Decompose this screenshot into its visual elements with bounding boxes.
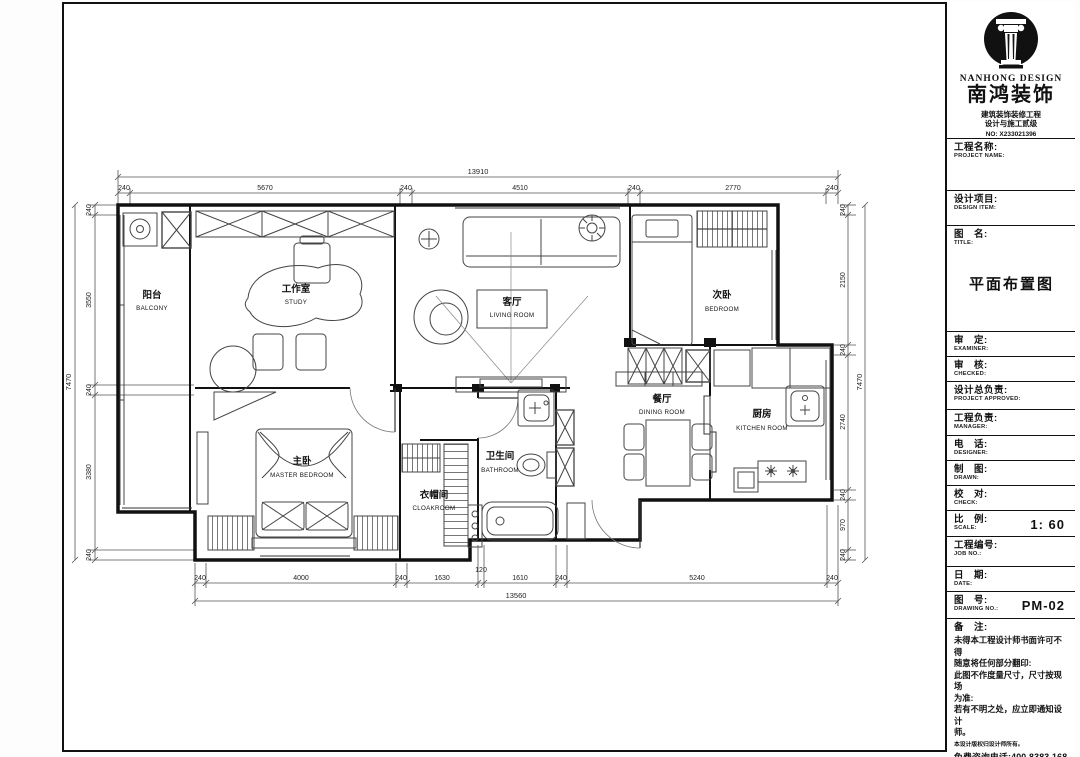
bedroom2-bed	[632, 215, 692, 345]
field-scale: 比 例: SCALE: 1: 60	[947, 511, 1075, 537]
company-cert-line1: 建筑装饰装修工程	[981, 110, 1041, 119]
room-label-study-cn: 工作室	[282, 283, 311, 295]
study-rug	[210, 346, 256, 392]
dim-left-3: 3380	[86, 464, 93, 480]
dim-left-0: 240	[86, 204, 93, 216]
dim-top-3: 4510	[512, 185, 528, 192]
field-check: 校 对: CHECK:	[947, 486, 1075, 511]
room-label-master-cn: 主卧	[292, 455, 312, 467]
field-drawing-no: 图 号: DRAWING NO.: PM-02	[947, 592, 1075, 619]
field-drawn-cn: 制 图:	[954, 464, 1069, 475]
study-chair-left	[253, 334, 283, 370]
company-logo-icon	[980, 10, 1042, 72]
master-desk	[214, 392, 276, 420]
room-label-cloakroom-en: CLOAKROOM	[413, 505, 456, 512]
dim-top-total: 13910	[468, 167, 489, 176]
kitchen-slider-leaf-2	[710, 432, 716, 472]
master-dresser	[197, 432, 208, 504]
field-examiner-cn: 审 定:	[954, 335, 1069, 346]
dining-table	[646, 420, 690, 486]
field-check-cn: 校 对:	[954, 489, 1069, 500]
room-label-kitchen-en: KITCHEN ROOM	[736, 425, 788, 432]
room-label-dining-cn: 餐厅	[651, 393, 672, 405]
room-label-master-en: MASTER BEDROOM	[270, 472, 334, 479]
field-phone-cn: 电 话:	[954, 439, 1069, 450]
armchair	[414, 290, 468, 344]
dim-top-1: 5670	[257, 185, 273, 192]
field-checked: 审 核: CHECKED:	[947, 357, 1075, 382]
room-label-bathroom-cn: 卫生间	[486, 450, 515, 462]
dim-top-6: 240	[826, 185, 838, 192]
drawing-no-value: PM-02	[1022, 598, 1065, 613]
field-check-en: CHECK:	[954, 500, 1069, 507]
study-chair-top	[294, 243, 330, 283]
note-line-4: 为准:	[954, 693, 1069, 705]
dim-bot-5: 1610	[512, 575, 528, 582]
top-dimension-chain: 13910 240 5670 240 4510 240 2770 240	[115, 167, 841, 204]
field-title-cn: 图 名:	[954, 229, 1069, 240]
toilet-tank	[547, 452, 556, 478]
room-label-balcony-en: BALCONY	[136, 305, 168, 312]
field-manager-en: MANAGER:	[954, 424, 1069, 431]
room-label-balcony-cn: 阳台	[142, 289, 162, 301]
note-line-5: 若有不明之处，应立即通知设计	[954, 704, 1069, 727]
field-project-name-cn: 工程名称:	[954, 142, 1069, 153]
burner-icons	[765, 465, 799, 477]
master-furniture	[197, 392, 398, 550]
notes-heading: 备 注:	[954, 622, 1069, 633]
dim-right-6: 240	[840, 549, 847, 561]
dim-right-3: 2740	[840, 414, 847, 430]
field-project-approved-cn: 设计总负责:	[954, 385, 1069, 396]
bedroom2-furniture	[628, 211, 767, 384]
master-wardrobe-left	[208, 516, 254, 550]
dining-chair-2	[624, 454, 644, 480]
notes-block: 备 注: 未得本工程设计师书面许可不得 随意将任何部分翻印: 此图不作度量尺寸，…	[947, 619, 1075, 757]
note-line-3: 此图不作度量尺寸，尺寸按现场	[954, 670, 1069, 693]
left-dimension-chain: 240 3550 240 3380 240 7470	[64, 202, 194, 563]
field-manager: 工程负责: MANAGER:	[947, 410, 1075, 436]
windows	[120, 208, 830, 556]
company-name-en: NANHONG DESIGN	[960, 74, 1062, 84]
walls	[118, 205, 832, 560]
dim-bot-total: 13560	[506, 591, 527, 600]
field-project-name: 工程名称: PROJECT NAME:	[947, 139, 1075, 191]
field-date: 日 期: DATE:	[947, 567, 1075, 592]
field-phone-en: DESIGNER:	[954, 450, 1069, 457]
dim-left-total: 7470	[64, 374, 73, 391]
dim-right-2: 240	[840, 344, 847, 356]
floor-plan-sheet: 13910 240 5670 240 4510 240 2770 240 240	[0, 0, 1080, 757]
note-line-1: 未得本工程设计师书面许可不得	[954, 635, 1069, 658]
dim-right-5: 970	[840, 519, 847, 531]
dim-top-0: 240	[118, 185, 130, 192]
note-line-6: 师。	[954, 727, 1069, 739]
field-title: 图 名: TITLE: 平面布置图	[947, 226, 1075, 332]
study-chair-right	[296, 334, 326, 370]
title-block: NANHONG DESIGN 南鸿装饰 建筑装饰装修工程 设计与施工贰级 NO:…	[945, 2, 1075, 752]
room-label-dining-en: DINING ROOM	[639, 409, 685, 416]
company-cert-line2: 设计与施工贰级	[985, 119, 1038, 128]
shoe-cabinet	[567, 503, 585, 539]
field-job-no-en: JOB NO.:	[954, 551, 1069, 558]
master-wardrobe-right	[354, 516, 398, 550]
study-desk	[245, 265, 362, 327]
bathtub	[482, 502, 558, 540]
room-label-kitchen-cn: 厨房	[752, 408, 771, 420]
room-label-bedroom-en: BEDROOM	[705, 306, 739, 313]
dim-bot-2: 240	[395, 575, 407, 582]
company-cert-no: NO: X233021396	[986, 131, 1037, 138]
dim-bot-7: 5240	[689, 575, 705, 582]
field-examiner-en: EXAMINER:	[954, 346, 1069, 353]
floor-plan-drawing: 13910 240 5670 240 4510 240 2770 240 240	[0, 0, 945, 757]
tv-label-box	[477, 290, 547, 328]
dim-bot-4: 120	[475, 567, 487, 574]
copyright-line: 本设计版权归设计师所有。	[954, 741, 1069, 750]
field-project-name-en: PROJECT NAME:	[954, 153, 1069, 160]
dim-bot-3: 1630	[434, 575, 450, 582]
master-door-arc	[350, 388, 395, 432]
dim-right-1: 2150	[840, 272, 847, 288]
room-label-bedroom-cn: 次卧	[712, 289, 732, 301]
field-job-no: 工程编号: JOB NO.:	[947, 537, 1075, 567]
dim-bot-6: 240	[555, 575, 567, 582]
hall-fixtures	[556, 410, 585, 539]
field-design-item-cn: 设计项目:	[954, 194, 1069, 205]
dim-top-2: 240	[400, 185, 412, 192]
dim-right-0: 240	[840, 204, 847, 216]
dim-right-4: 240	[840, 489, 847, 501]
field-drawn-en: DRAWN:	[954, 475, 1069, 482]
dim-right-total: 7470	[855, 374, 864, 391]
field-job-no-cn: 工程编号:	[954, 540, 1069, 551]
field-title-en: TITLE:	[954, 240, 1069, 247]
dim-left-1: 3550	[86, 292, 93, 308]
dining-furniture	[616, 372, 712, 486]
field-checked-cn: 审 核:	[954, 360, 1069, 371]
right-dimension-chain: 240 2150 240 2740 240 970 240 7470	[834, 202, 868, 563]
field-design-item-en: DESIGN ITEM:	[954, 205, 1069, 212]
field-date-en: DATE:	[954, 581, 1069, 588]
field-checked-en: CHECKED:	[954, 371, 1069, 378]
field-phone: 电 话: DESIGNER:	[947, 436, 1075, 461]
scale-value: 1: 60	[1030, 517, 1065, 532]
field-design-item: 设计项目: DESIGN ITEM:	[947, 191, 1075, 226]
toilet	[517, 454, 545, 476]
kitchen-fixtures	[714, 348, 830, 492]
bed-bench	[252, 538, 356, 548]
room-label-cloakroom-cn: 衣帽间	[420, 489, 449, 501]
field-drawn: 制 图: DRAWN:	[947, 461, 1075, 486]
room-label-study-en: STUDY	[285, 299, 307, 306]
dim-top-4: 240	[628, 185, 640, 192]
company-logo-block: NANHONG DESIGN 南鸿装饰 建筑装饰装修工程 设计与施工贰级 NO:…	[947, 2, 1075, 139]
room-label-living-cn: 客厅	[501, 296, 522, 308]
hotline: 免费咨询电话:400 8383 168	[954, 750, 1069, 757]
dim-bot-0: 240	[194, 575, 206, 582]
company-name-cn: 南鸿装饰	[967, 84, 1055, 107]
field-project-approved-en: PROJECT APPROVED:	[954, 396, 1069, 403]
room-label-bathroom-en: BATHROOM	[481, 467, 519, 474]
balcony-fixtures	[123, 212, 191, 248]
fridge	[714, 350, 750, 386]
bathroom-door-arc	[478, 398, 518, 438]
room-label-living-en: LIVING ROOM	[490, 312, 535, 319]
dim-top-5: 2770	[725, 185, 741, 192]
dining-chair-1	[624, 424, 644, 450]
field-date-cn: 日 期:	[954, 570, 1069, 581]
drawing-title-value: 平面布置图	[954, 273, 1069, 294]
dim-bot-8: 240	[826, 575, 838, 582]
dim-bot-1: 4000	[293, 575, 309, 582]
field-examiner: 审 定: EXAMINER:	[947, 332, 1075, 357]
field-project-approved: 设计总负责: PROJECT APPROVED:	[947, 382, 1075, 410]
note-line-2: 随意将任何部分翻印:	[954, 658, 1069, 670]
dim-left-2: 240	[86, 384, 93, 396]
kitchen-slider-leaf-1	[704, 396, 710, 434]
dim-left-4: 240	[86, 549, 93, 561]
field-manager-cn: 工程负责:	[954, 413, 1069, 424]
dining-chair-3	[692, 424, 712, 450]
